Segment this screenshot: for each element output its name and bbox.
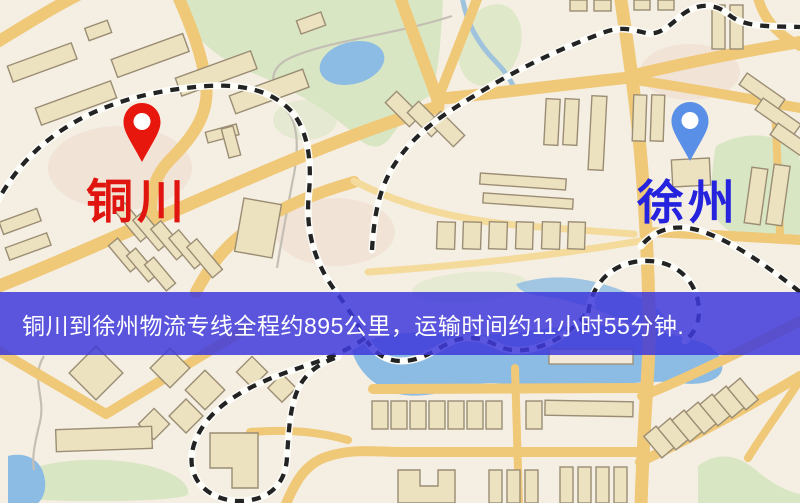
- destination-city-label: 徐州: [637, 179, 739, 226]
- origin-city-label: 铜川: [86, 178, 188, 225]
- blue-pin-icon: [668, 100, 712, 164]
- route-info-text: 铜川到徐州物流专线全程约895公里，运输时间约11小时55分钟.: [22, 307, 684, 341]
- pond-southwest: [8, 455, 45, 503]
- map-graphic: [0, 0, 800, 503]
- route-info-banner: 铜川到徐州物流专线全程约895公里，运输时间约11小时55分钟.: [0, 292, 800, 355]
- building-cluster-center: [437, 96, 607, 250]
- red-pin-icon: [120, 101, 164, 165]
- map-canvas[interactable]: 铜川 徐州 铜川到徐州物流专线全程约895公里，运输时间约11小时55分钟.: [0, 0, 800, 503]
